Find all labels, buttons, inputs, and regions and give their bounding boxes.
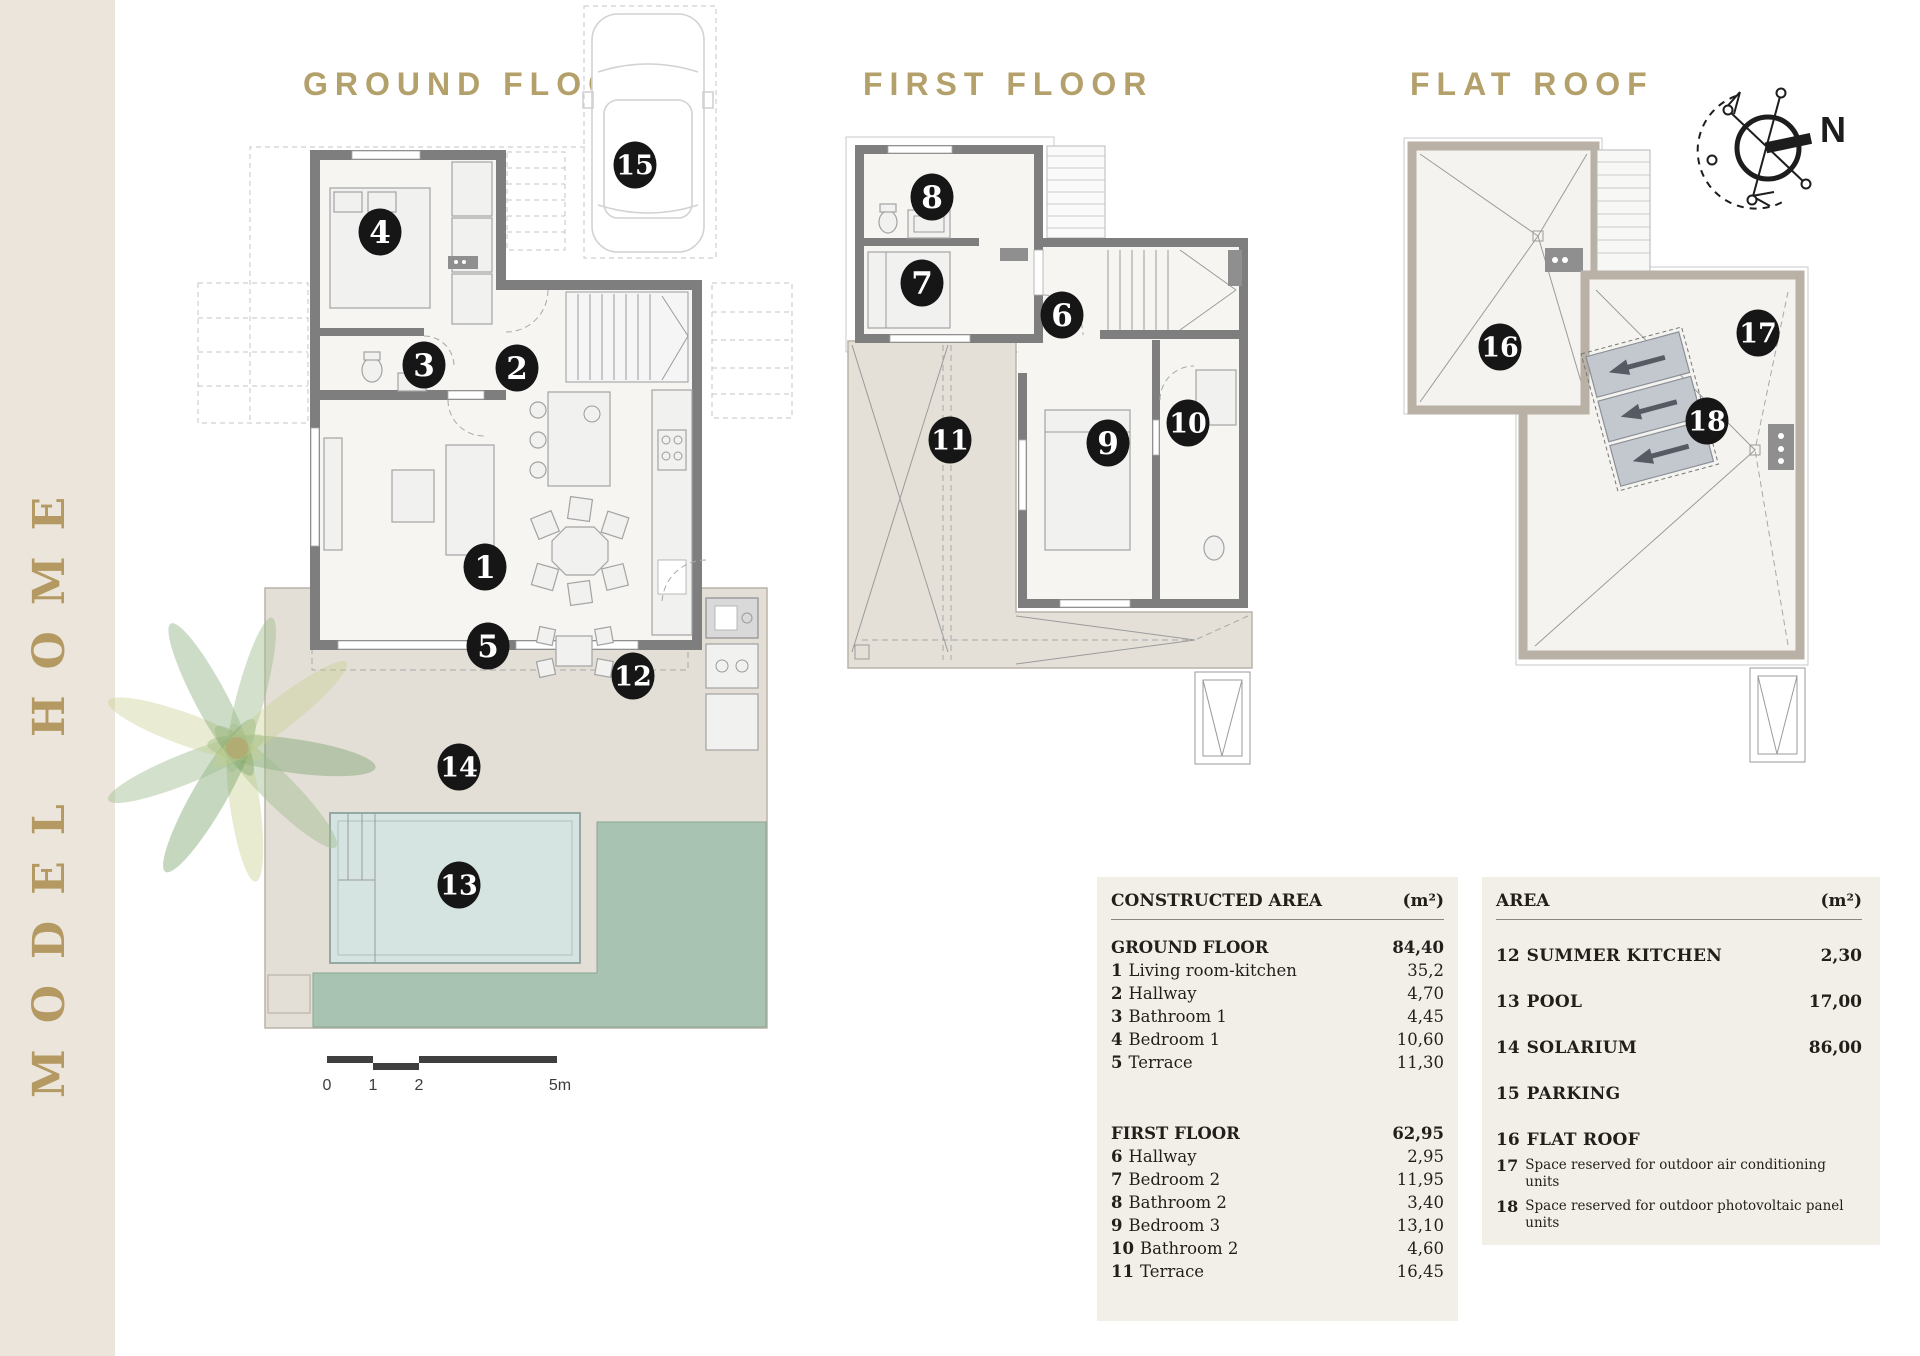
table-row: 15PARKING bbox=[1496, 1084, 1862, 1104]
scale-label: 0 bbox=[323, 1077, 332, 1094]
room-marker-number: 6 bbox=[1051, 298, 1073, 334]
neighbour-context-left bbox=[198, 283, 308, 423]
room-marker-number: 10 bbox=[1169, 409, 1207, 440]
room-marker-number: 17 bbox=[1739, 319, 1777, 350]
scale-label: 1 bbox=[369, 1077, 378, 1094]
room-marker-number: 9 bbox=[1097, 426, 1119, 462]
room-marker-number: 7 bbox=[911, 266, 933, 302]
area-header-unit: (m²) bbox=[1798, 891, 1862, 911]
room-marker-number: 3 bbox=[413, 348, 435, 384]
room-marker-number: 15 bbox=[616, 151, 654, 182]
table-row: 17Space reserved for outdoor air conditi… bbox=[1496, 1157, 1862, 1191]
table-row: 8Bathroom 23,40 bbox=[1111, 1191, 1444, 1214]
north-label: N bbox=[1820, 109, 1846, 150]
table-row: 11Terrace16,45 bbox=[1111, 1260, 1444, 1283]
scale-label: 5m bbox=[549, 1077, 571, 1094]
table-row: 5Terrace11,30 bbox=[1111, 1051, 1444, 1074]
stairwell-void bbox=[1047, 146, 1105, 238]
scale-bar bbox=[327, 1056, 557, 1070]
table-row: 18Space reserved for outdoor photovoltai… bbox=[1496, 1198, 1862, 1232]
room-marker-number: 18 bbox=[1688, 407, 1726, 438]
constructed-area-table: CONSTRUCTED AREA (m²) GROUND FLOOR84,401… bbox=[1097, 877, 1458, 1321]
table-row: 4Bedroom 110,60 bbox=[1111, 1028, 1444, 1051]
scale-bar-labels: 0125m bbox=[323, 1077, 572, 1094]
room-marker-number: 2 bbox=[506, 351, 528, 387]
room-marker-number: 12 bbox=[614, 662, 652, 693]
area-table-header: AREA (m²) bbox=[1496, 887, 1862, 920]
area-header-label: AREA bbox=[1496, 891, 1549, 911]
exterior-stair-dashed bbox=[507, 152, 565, 250]
room-marker-number: 13 bbox=[440, 871, 478, 902]
table-row: 16FLAT ROOF bbox=[1496, 1130, 1862, 1150]
roof-left-block bbox=[1412, 146, 1595, 410]
scale-label: 2 bbox=[415, 1077, 424, 1094]
first-floor-plan: 67891011 bbox=[846, 137, 1252, 764]
table-row: 6Hallway2,95 bbox=[1111, 1145, 1444, 1168]
car-top-view bbox=[583, 14, 713, 252]
room-marker-number: 14 bbox=[440, 753, 478, 784]
area-table: AREA (m²) 12SUMMER KITCHEN2,3013POOL17,0… bbox=[1482, 877, 1880, 1245]
table-row: 7Bedroom 211,95 bbox=[1111, 1168, 1444, 1191]
area-table-body: 12SUMMER KITCHEN2,3013POOL17,0014SOLARIU… bbox=[1496, 946, 1862, 1232]
table-row: 3Bathroom 14,45 bbox=[1111, 1005, 1444, 1028]
room-marker-number: 8 bbox=[921, 180, 943, 216]
table-row: 2Hallway4,70 bbox=[1111, 982, 1444, 1005]
roof-stair-strip bbox=[1597, 150, 1650, 272]
compass-north-icon: N bbox=[1698, 89, 1846, 209]
table-row: GROUND FLOOR84,40 bbox=[1111, 936, 1444, 959]
room-marker-number: 5 bbox=[477, 629, 499, 665]
table-row: 10Bathroom 24,60 bbox=[1111, 1237, 1444, 1260]
room-marker-number: 16 bbox=[1481, 333, 1519, 364]
room-marker-number: 11 bbox=[931, 426, 969, 457]
table-row: FIRST FLOOR62,95 bbox=[1111, 1122, 1444, 1145]
table-section: FIRST FLOOR62,956Hallway2,957Bedroom 211… bbox=[1111, 1122, 1444, 1283]
constructed-table-header: CONSTRUCTED AREA (m²) bbox=[1111, 887, 1444, 920]
table-row: 1Living room-kitchen35,2 bbox=[1111, 959, 1444, 982]
constructed-table-body: GROUND FLOOR84,401Living room-kitchen35,… bbox=[1111, 936, 1444, 1283]
flat-roof-plan: 161718 bbox=[1404, 138, 1808, 762]
table-row: 12SUMMER KITCHEN2,30 bbox=[1496, 946, 1862, 966]
table-row: 9Bedroom 313,10 bbox=[1111, 1214, 1444, 1237]
constructed-header-label: CONSTRUCTED AREA bbox=[1111, 891, 1322, 911]
constructed-header-unit: (m²) bbox=[1392, 891, 1444, 911]
interior-stairs bbox=[566, 292, 688, 382]
table-row: 13POOL17,00 bbox=[1496, 992, 1862, 1012]
table-section: GROUND FLOOR84,401Living room-kitchen35,… bbox=[1111, 936, 1444, 1074]
neighbour-context-right bbox=[712, 283, 792, 418]
room-marker-number: 1 bbox=[474, 550, 496, 586]
table-row: 14SOLARIUM86,00 bbox=[1496, 1038, 1862, 1058]
ground-floor-plan: 1234512131415 bbox=[103, 6, 792, 1070]
room-marker-number: 4 bbox=[369, 215, 391, 251]
roof-appendix bbox=[1750, 668, 1805, 762]
